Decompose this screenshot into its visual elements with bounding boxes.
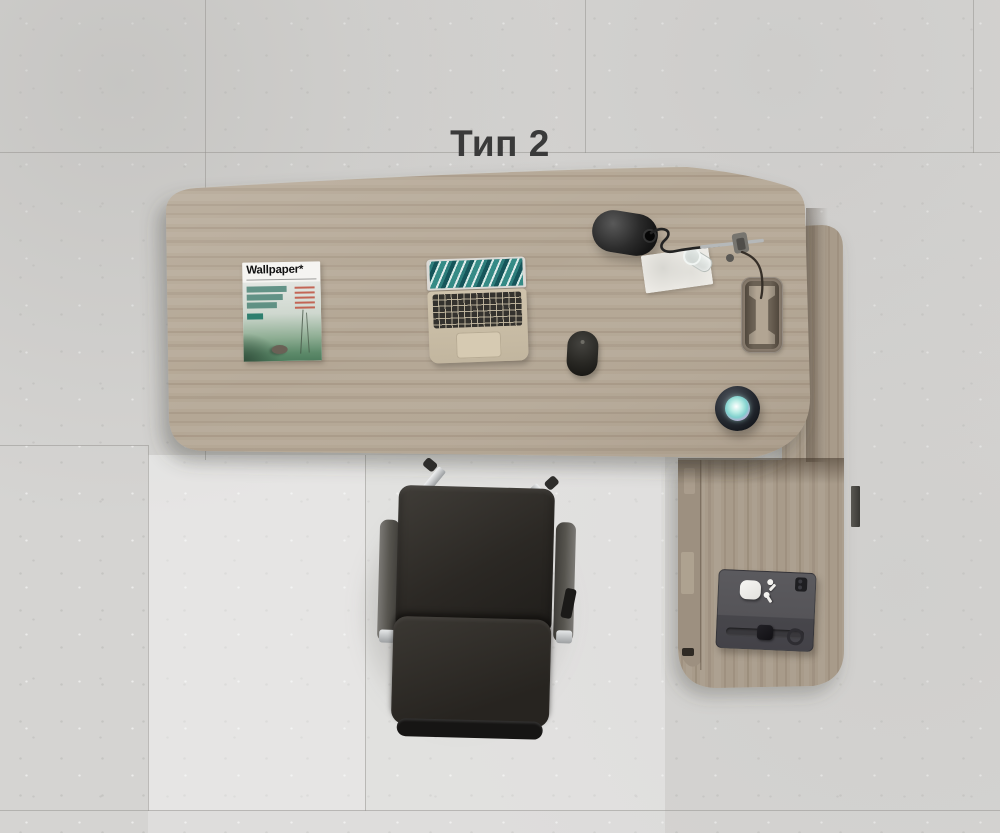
office-chair [366,457,585,748]
laptop-trackpad [456,331,502,359]
smart-speaker [715,386,760,431]
cable-grommet [741,277,783,353]
magazine-rule [246,278,316,280]
cabinet-edge-line [700,460,702,670]
airpods-case [739,580,761,600]
cabinet-handle [681,552,694,594]
chair-seat-cushion [391,616,552,728]
computer-mouse [566,330,599,377]
laptop-screen [426,256,526,290]
magazine-text-line [295,301,315,303]
watch-band-ring [787,628,805,646]
cover-tree [300,310,303,354]
tablet-camera [795,577,808,592]
magazine-masthead: Wallpaper* [246,264,303,277]
edge-bracket [851,486,860,527]
magazine: Wallpaper* [242,261,322,361]
tablet-case [715,569,816,652]
speaker-glow-top [725,396,750,421]
magazine-text-line [295,306,315,308]
magazine-text-line [295,291,315,293]
chair-front-edge [396,718,542,740]
furniture-render-scene: Тип 2 [0,0,1000,833]
magazine-headline-bar [247,286,287,293]
laptop-keyboard [432,291,522,328]
magazine-cover-image [242,281,321,361]
camera-lens [798,579,802,583]
magazine-badge [247,313,263,319]
magazine-text-line [295,286,315,288]
chair-armrest [553,522,576,642]
laptop-body [427,288,528,363]
cover-tree [306,313,310,353]
cover-rock [272,345,288,354]
magazine-text-line [295,296,315,298]
smartwatch [757,625,774,641]
lamp-cap [644,230,655,241]
chair-armrest-cap [556,630,572,643]
magazine-headline-bar [247,294,283,301]
chair-backrest [395,485,555,635]
earbud-stem [766,595,772,603]
cabinet-foot-notch [682,648,694,656]
camera-lens [798,585,802,589]
laptop [426,256,529,363]
mouse-dot [581,340,585,344]
desk-shadow-on-strip [806,208,828,462]
magazine-headline-bar [247,302,277,309]
laptop-display-wallpaper [429,258,523,288]
